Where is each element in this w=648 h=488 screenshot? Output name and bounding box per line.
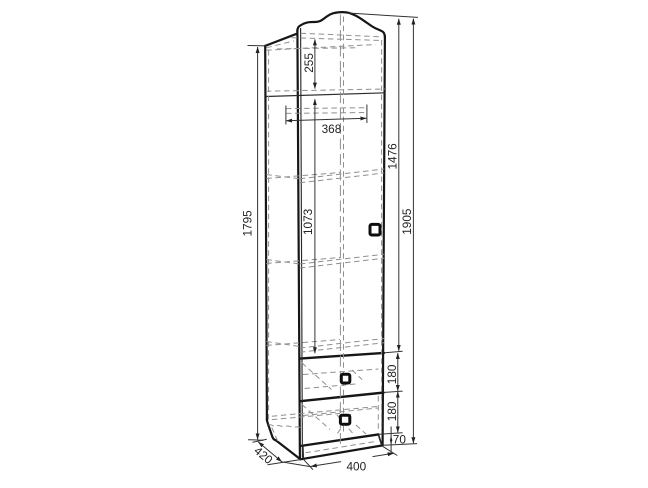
svg-text:1476: 1476 [386, 143, 400, 170]
svg-text:1905: 1905 [400, 208, 414, 235]
svg-text:70: 70 [393, 433, 407, 447]
svg-text:255: 255 [302, 53, 316, 73]
svg-text:180: 180 [385, 364, 399, 384]
svg-text:368: 368 [322, 122, 342, 136]
svg-text:1795: 1795 [241, 210, 255, 237]
svg-text:1073: 1073 [301, 208, 315, 235]
svg-text:180: 180 [385, 401, 399, 421]
svg-text:400: 400 [347, 460, 367, 474]
